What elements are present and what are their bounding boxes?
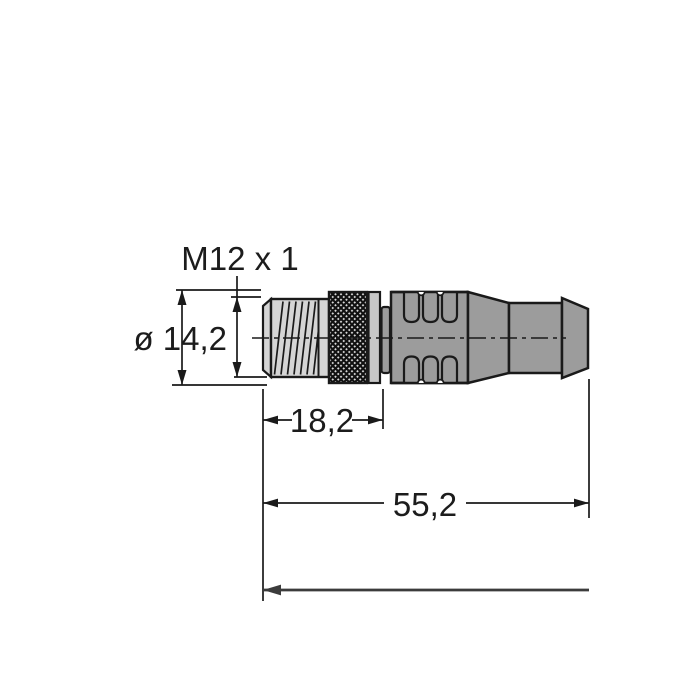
rib-notch-top-1 — [418, 292, 425, 295]
rib-notch-bottom-2 — [437, 380, 444, 383]
thread-spec-label: M12 x 1 — [181, 240, 298, 277]
connector-illustration — [252, 292, 588, 383]
grip-rib-bottom-1 — [404, 357, 419, 383]
grip-rib-top-1 — [404, 293, 419, 322]
drawing-svg: ø 14,2 M12 x 1 18,2 55,2 — [0, 0, 680, 680]
collar-neck — [382, 307, 391, 373]
rib-notch-bottom-1 — [418, 380, 425, 383]
rib-notch-top-2 — [437, 292, 444, 295]
grip-rib-bottom-3 — [442, 357, 457, 383]
diameter-label: ø 14,2 — [133, 320, 227, 357]
grip-rib-top-3 — [442, 293, 457, 322]
overall-length-label: 55,2 — [393, 486, 457, 523]
grip-rib-bottom-2 — [423, 357, 438, 383]
grip-rib-top-2 — [423, 293, 438, 322]
thread-length-label: 18,2 — [290, 402, 354, 439]
connector-dimension-drawing: ø 14,2 M12 x 1 18,2 55,2 — [0, 0, 680, 680]
